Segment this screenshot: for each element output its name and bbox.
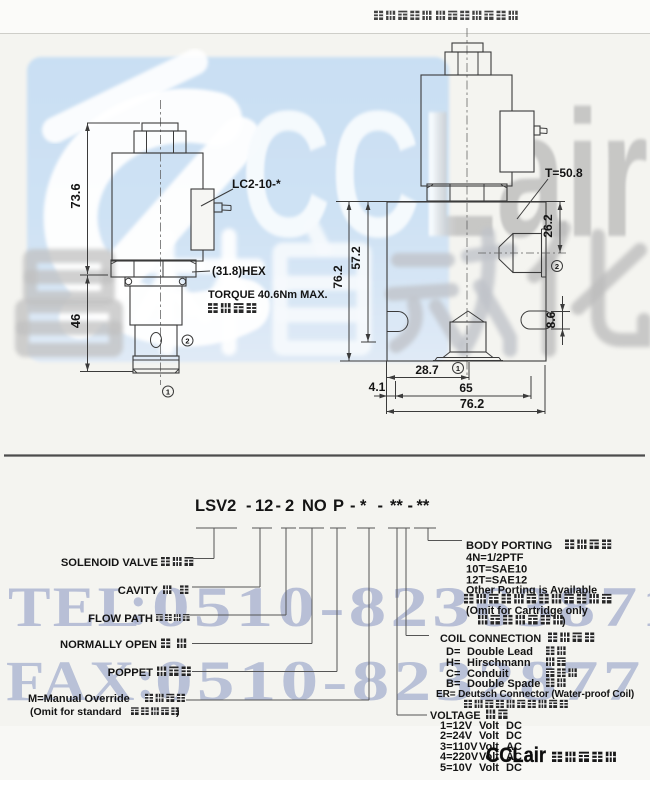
svg-text:2: 2 [285,497,294,515]
svg-text:NORMALLY OPEN: NORMALLY OPEN [60,639,157,651]
svg-text:P: P [333,497,344,515]
svg-text:): ) [562,616,566,628]
svg-text:FLOW PATH: FLOW PATH [88,613,153,625]
svg-text:(Omit for standard: (Omit for standard [30,706,122,718]
svg-text:76.2: 76.2 [460,397,484,411]
svg-text:SOLENOID VALVE: SOLENOID VALVE [61,557,159,569]
svg-text:4.1: 4.1 [369,380,386,394]
svg-text:4N=1/2PTF: 4N=1/2PTF [466,552,524,564]
svg-text:T=50.8: T=50.8 [545,166,583,180]
svg-text:M=Manual Override: M=Manual Override [28,693,130,705]
svg-text:**: ** [417,497,430,515]
svg-text:-: - [350,497,356,515]
svg-text:BODY PORTING: BODY PORTING [466,540,552,552]
svg-text:57.2: 57.2 [349,246,363,270]
svg-text:0510-82328771: 0510-82328771 [155,650,650,712]
svg-text:46: 46 [68,314,83,328]
svg-text:-: - [246,497,252,515]
svg-text:**: ** [390,497,403,515]
svg-text:-: - [378,497,384,515]
svg-text:1: 1 [166,387,170,396]
svg-text:2: 2 [555,262,559,271]
svg-text:2: 2 [185,336,189,345]
svg-text:ER= Deutsch Connector (Water-p: ER= Deutsch Connector (Water-proof Coil) [436,689,634,700]
svg-text:LC2-10-*: LC2-10-* [232,177,281,191]
svg-text:-: - [276,497,282,515]
svg-text:POPPET: POPPET [108,667,154,679]
svg-text:-: - [408,497,414,515]
svg-text:TORQUE 40.6Nm MAX.: TORQUE 40.6Nm MAX. [208,289,328,301]
svg-text:76.2: 76.2 [331,265,345,289]
svg-text:CAVITY: CAVITY [118,585,159,597]
svg-text:65: 65 [459,381,473,395]
svg-text:): ) [176,706,180,718]
svg-text:12: 12 [255,497,273,515]
svg-text::: : [129,574,148,637]
svg-text:1: 1 [456,364,460,373]
svg-text:8.6: 8.6 [544,311,558,328]
svg-text:CCLair: CCLair [486,744,546,767]
svg-text:26.2: 26.2 [541,214,555,238]
svg-text:LSV2: LSV2 [195,497,236,515]
svg-text:73.6: 73.6 [68,183,83,208]
svg-text:28.7: 28.7 [415,363,439,377]
svg-text:*: * [360,497,367,515]
svg-text:(31.8)HEX: (31.8)HEX [212,266,266,278]
svg-text:COIL CONNECTION: COIL CONNECTION [440,633,541,645]
svg-text:5=10V: 5=10V [440,762,473,774]
svg-text:NO: NO [302,497,327,515]
